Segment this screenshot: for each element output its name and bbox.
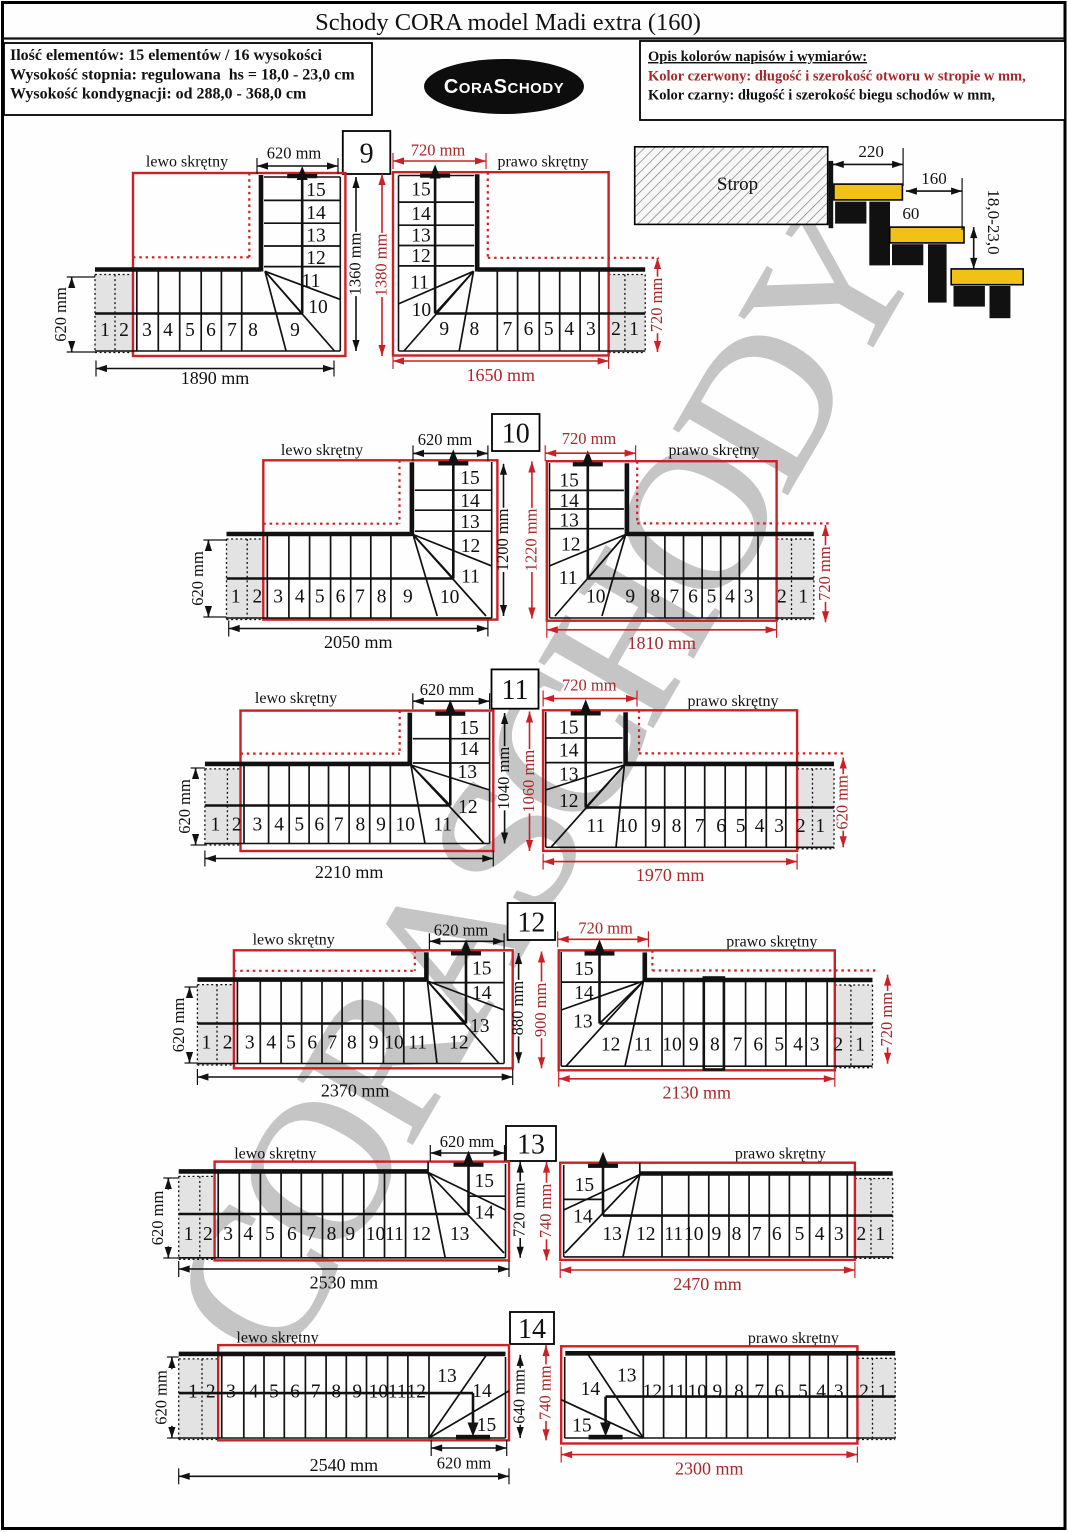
svg-text:220: 220 bbox=[858, 142, 884, 161]
svg-text:9: 9 bbox=[403, 587, 413, 608]
svg-text:15: 15 bbox=[477, 1415, 497, 1436]
svg-text:7: 7 bbox=[695, 816, 705, 837]
svg-text:3: 3 bbox=[253, 815, 263, 836]
svg-text:13: 13 bbox=[450, 1224, 470, 1245]
svg-text:1810 mm: 1810 mm bbox=[627, 633, 696, 653]
svg-text:15: 15 bbox=[575, 1175, 595, 1196]
svg-text:10: 10 bbox=[684, 1224, 704, 1245]
svg-text:6: 6 bbox=[206, 320, 216, 341]
svg-text:12: 12 bbox=[461, 536, 481, 557]
svg-text:4: 4 bbox=[266, 1032, 276, 1053]
svg-text:14: 14 bbox=[306, 203, 326, 224]
svg-text:lewo skrętny: lewo skrętny bbox=[234, 1146, 316, 1163]
svg-text:5: 5 bbox=[315, 587, 325, 608]
svg-text:13: 13 bbox=[470, 1016, 490, 1037]
svg-text:11: 11 bbox=[559, 568, 578, 589]
svg-text:Ilość elementów: 15 elementów: Ilość elementów: 15 elementów / 16 wysok… bbox=[10, 47, 323, 64]
svg-text:1: 1 bbox=[100, 320, 110, 341]
svg-text:1890 mm: 1890 mm bbox=[181, 368, 250, 388]
svg-text:9: 9 bbox=[625, 587, 635, 608]
svg-text:4: 4 bbox=[725, 587, 735, 608]
svg-text:5: 5 bbox=[795, 1224, 805, 1245]
svg-text:4: 4 bbox=[755, 816, 765, 837]
svg-text:13: 13 bbox=[457, 762, 477, 783]
svg-text:11: 11 bbox=[302, 271, 321, 292]
svg-text:11: 11 bbox=[408, 1032, 427, 1053]
svg-text:1: 1 bbox=[231, 587, 241, 608]
svg-text:6: 6 bbox=[290, 1381, 300, 1402]
svg-text:prawo skrętny: prawo skrętny bbox=[497, 154, 588, 171]
svg-text:11: 11 bbox=[667, 1381, 686, 1402]
svg-text:11: 11 bbox=[385, 1224, 404, 1245]
svg-text:1970 mm: 1970 mm bbox=[636, 865, 705, 885]
svg-text:5: 5 bbox=[707, 587, 717, 608]
svg-text:9: 9 bbox=[376, 815, 386, 836]
svg-text:2300 mm: 2300 mm bbox=[675, 1459, 744, 1479]
svg-text:4: 4 bbox=[815, 1224, 825, 1245]
svg-text:10: 10 bbox=[384, 1032, 404, 1053]
svg-text:15: 15 bbox=[411, 179, 431, 200]
svg-text:8: 8 bbox=[377, 587, 387, 608]
svg-text:7: 7 bbox=[227, 320, 237, 341]
svg-text:6: 6 bbox=[772, 1224, 782, 1245]
svg-text:620 mm: 620 mm bbox=[169, 998, 188, 1053]
svg-text:720 mm: 720 mm bbox=[411, 141, 466, 160]
svg-text:14: 14 bbox=[559, 491, 579, 512]
svg-text:9: 9 bbox=[651, 816, 661, 837]
svg-text:14: 14 bbox=[472, 1381, 492, 1402]
svg-text:5: 5 bbox=[286, 1032, 296, 1053]
svg-text:prawo skrętny: prawo skrętny bbox=[735, 1146, 826, 1163]
svg-text:5: 5 bbox=[185, 320, 195, 341]
svg-text:12: 12 bbox=[458, 797, 478, 818]
svg-text:12: 12 bbox=[643, 1381, 663, 1402]
svg-text:1040 mm: 1040 mm bbox=[494, 747, 513, 810]
svg-text:740 mm: 740 mm bbox=[536, 1184, 555, 1239]
svg-text:14: 14 bbox=[460, 491, 480, 512]
svg-text:13: 13 bbox=[306, 225, 326, 246]
svg-text:2: 2 bbox=[119, 320, 129, 341]
svg-text:10: 10 bbox=[366, 1224, 386, 1245]
svg-text:lewo skrętny: lewo skrętny bbox=[146, 154, 228, 171]
svg-text:11: 11 bbox=[388, 1381, 407, 1402]
svg-text:720 mm: 720 mm bbox=[510, 1182, 529, 1237]
svg-text:2: 2 bbox=[833, 1034, 843, 1055]
svg-text:2370 mm: 2370 mm bbox=[321, 1081, 390, 1101]
svg-text:Wysokość stopnia: regulowana: Wysokość stopnia: regulowana hs = 18,0 -… bbox=[10, 67, 355, 84]
svg-text:2: 2 bbox=[206, 1381, 216, 1402]
svg-text:1650 mm: 1650 mm bbox=[467, 365, 536, 385]
svg-text:6: 6 bbox=[753, 1034, 763, 1055]
svg-text:11: 11 bbox=[410, 273, 429, 294]
svg-text:12: 12 bbox=[561, 534, 581, 555]
svg-text:Kolor czerwony: długość i sze: Kolor czerwony: długość i szerokość otwo… bbox=[648, 69, 1026, 85]
svg-text:13: 13 bbox=[559, 511, 579, 532]
svg-text:720 mm: 720 mm bbox=[647, 278, 666, 333]
svg-text:2: 2 bbox=[203, 1224, 213, 1245]
svg-text:4: 4 bbox=[243, 1224, 253, 1245]
svg-text:8: 8 bbox=[672, 816, 682, 837]
svg-text:10: 10 bbox=[440, 587, 460, 608]
svg-text:1: 1 bbox=[184, 1224, 194, 1245]
svg-text:11: 11 bbox=[502, 675, 529, 706]
svg-text:12: 12 bbox=[449, 1032, 469, 1053]
svg-text:720 mm: 720 mm bbox=[815, 546, 834, 601]
svg-text:prawo skrętny: prawo skrętny bbox=[726, 933, 817, 950]
svg-text:11: 11 bbox=[664, 1224, 683, 1245]
svg-text:12: 12 bbox=[306, 248, 326, 269]
svg-text:620 mm: 620 mm bbox=[51, 287, 70, 342]
svg-text:1: 1 bbox=[878, 1381, 888, 1402]
svg-text:12: 12 bbox=[411, 246, 431, 267]
svg-text:15: 15 bbox=[475, 1171, 495, 1192]
svg-text:6: 6 bbox=[287, 1224, 297, 1245]
svg-text:8: 8 bbox=[248, 320, 258, 341]
svg-text:1360 mm: 1360 mm bbox=[346, 232, 365, 295]
svg-text:4: 4 bbox=[793, 1034, 803, 1055]
svg-text:18,0-23,0: 18,0-23,0 bbox=[984, 189, 1003, 254]
svg-text:3: 3 bbox=[142, 320, 152, 341]
svg-text:7: 7 bbox=[306, 1224, 316, 1245]
svg-text:880 mm: 880 mm bbox=[508, 981, 527, 1036]
svg-text:7: 7 bbox=[355, 587, 365, 608]
svg-text:620 mm: 620 mm bbox=[434, 921, 489, 940]
svg-text:15: 15 bbox=[559, 471, 579, 492]
svg-text:3: 3 bbox=[245, 1032, 255, 1053]
svg-text:15: 15 bbox=[460, 468, 480, 489]
svg-text:CORASCHODY: CORASCHODY bbox=[444, 76, 564, 98]
svg-text:8: 8 bbox=[347, 1032, 357, 1053]
svg-text:2: 2 bbox=[611, 319, 621, 340]
svg-text:prawo skrętny: prawo skrętny bbox=[687, 693, 778, 710]
svg-text:720 mm: 720 mm bbox=[562, 429, 617, 448]
svg-text:1220 mm: 1220 mm bbox=[521, 508, 540, 571]
svg-text:9: 9 bbox=[712, 1224, 722, 1245]
svg-text:14: 14 bbox=[559, 741, 579, 762]
svg-text:720 mm: 720 mm bbox=[578, 919, 633, 938]
svg-text:5: 5 bbox=[269, 1381, 279, 1402]
svg-text:8: 8 bbox=[710, 1034, 720, 1055]
svg-text:2050 mm: 2050 mm bbox=[324, 632, 393, 652]
svg-text:15: 15 bbox=[574, 959, 594, 980]
svg-text:9: 9 bbox=[369, 1032, 379, 1053]
svg-text:lewo skrętny: lewo skrętny bbox=[253, 931, 335, 948]
svg-text:15: 15 bbox=[572, 1416, 592, 1437]
svg-text:2: 2 bbox=[796, 816, 806, 837]
svg-text:2: 2 bbox=[777, 587, 787, 608]
svg-text:15: 15 bbox=[306, 180, 326, 201]
svg-text:9: 9 bbox=[713, 1381, 723, 1402]
svg-text:3: 3 bbox=[834, 1224, 844, 1245]
svg-text:7: 7 bbox=[733, 1034, 743, 1055]
svg-text:15: 15 bbox=[459, 718, 479, 739]
svg-text:4: 4 bbox=[163, 320, 173, 341]
svg-text:5: 5 bbox=[265, 1224, 275, 1245]
svg-text:13: 13 bbox=[602, 1224, 622, 1245]
svg-text:15: 15 bbox=[472, 958, 492, 979]
svg-text:6: 6 bbox=[524, 319, 534, 340]
svg-text:3: 3 bbox=[810, 1034, 820, 1055]
svg-text:11: 11 bbox=[634, 1034, 653, 1055]
svg-text:10: 10 bbox=[618, 816, 638, 837]
svg-text:10: 10 bbox=[369, 1381, 389, 1402]
svg-text:14: 14 bbox=[472, 983, 492, 1004]
svg-text:740 mm: 740 mm bbox=[536, 1365, 555, 1420]
svg-text:2210 mm: 2210 mm bbox=[315, 862, 384, 882]
svg-text:1: 1 bbox=[798, 587, 808, 608]
svg-text:2540 mm: 2540 mm bbox=[310, 1455, 379, 1475]
svg-text:620 mm: 620 mm bbox=[175, 779, 194, 834]
svg-text:14: 14 bbox=[475, 1203, 495, 1224]
svg-text:4: 4 bbox=[295, 587, 305, 608]
svg-text:Kolor czarny: długość i szero: Kolor czarny: długość i szerokość biegu … bbox=[648, 88, 995, 104]
svg-text:12: 12 bbox=[559, 791, 579, 812]
svg-text:14: 14 bbox=[518, 1314, 546, 1345]
svg-text:8: 8 bbox=[331, 1381, 341, 1402]
svg-text:Schody CORA model Madi extra (: Schody CORA model Madi extra (160) bbox=[315, 9, 701, 36]
svg-text:6: 6 bbox=[688, 587, 698, 608]
svg-text:5: 5 bbox=[294, 815, 304, 836]
svg-text:7: 7 bbox=[752, 1224, 762, 1245]
svg-text:7: 7 bbox=[503, 319, 513, 340]
svg-text:1380 mm: 1380 mm bbox=[372, 233, 391, 296]
svg-text:8: 8 bbox=[732, 1224, 742, 1245]
svg-text:13: 13 bbox=[411, 225, 431, 246]
svg-text:Strop: Strop bbox=[717, 174, 758, 195]
svg-text:13: 13 bbox=[460, 512, 480, 533]
svg-text:9: 9 bbox=[689, 1034, 699, 1055]
svg-text:10: 10 bbox=[662, 1034, 682, 1055]
svg-text:Wysokość kondygnacji: od 288,0: Wysokość kondygnacji: od 288,0 - 368,0 c… bbox=[10, 86, 307, 103]
svg-text:2: 2 bbox=[223, 1032, 233, 1053]
svg-text:6: 6 bbox=[336, 587, 346, 608]
svg-text:1: 1 bbox=[875, 1224, 885, 1245]
svg-text:11: 11 bbox=[461, 566, 480, 587]
svg-text:3: 3 bbox=[273, 587, 283, 608]
svg-text:10: 10 bbox=[412, 300, 432, 321]
svg-text:10: 10 bbox=[502, 419, 530, 450]
svg-text:2: 2 bbox=[857, 1224, 867, 1245]
svg-text:4: 4 bbox=[249, 1381, 259, 1402]
svg-text:lewo skrętny: lewo skrętny bbox=[281, 442, 363, 459]
svg-text:1060 mm: 1060 mm bbox=[519, 750, 538, 813]
svg-text:8: 8 bbox=[734, 1381, 744, 1402]
svg-text:14: 14 bbox=[459, 739, 479, 760]
svg-text:9: 9 bbox=[360, 139, 374, 170]
svg-text:14: 14 bbox=[574, 983, 594, 1004]
svg-text:2: 2 bbox=[859, 1381, 869, 1402]
svg-text:prawo skrętny: prawo skrętny bbox=[668, 442, 759, 459]
svg-text:7: 7 bbox=[334, 815, 344, 836]
svg-text:9: 9 bbox=[352, 1381, 362, 1402]
svg-text:prawo skrętny: prawo skrętny bbox=[748, 1330, 839, 1347]
svg-text:10: 10 bbox=[586, 587, 606, 608]
svg-text:13: 13 bbox=[559, 765, 579, 786]
svg-text:8: 8 bbox=[470, 319, 480, 340]
svg-text:6: 6 bbox=[774, 1381, 784, 1402]
svg-text:6: 6 bbox=[314, 815, 324, 836]
svg-text:1: 1 bbox=[211, 815, 221, 836]
svg-text:2: 2 bbox=[253, 587, 263, 608]
svg-text:13: 13 bbox=[617, 1365, 637, 1386]
svg-text:12: 12 bbox=[412, 1224, 432, 1245]
svg-text:4: 4 bbox=[816, 1381, 826, 1402]
svg-text:11: 11 bbox=[587, 816, 606, 837]
svg-text:lewo skrętny: lewo skrętny bbox=[255, 690, 337, 707]
svg-text:3: 3 bbox=[226, 1381, 236, 1402]
svg-text:15: 15 bbox=[559, 718, 579, 739]
svg-text:5: 5 bbox=[544, 319, 554, 340]
svg-text:8: 8 bbox=[327, 1224, 337, 1245]
svg-text:14: 14 bbox=[411, 204, 431, 225]
svg-text:2530 mm: 2530 mm bbox=[310, 1273, 379, 1293]
svg-text:620 mm: 620 mm bbox=[267, 144, 322, 163]
svg-text:620 mm: 620 mm bbox=[833, 775, 852, 830]
svg-text:900 mm: 900 mm bbox=[531, 982, 550, 1037]
svg-text:720 mm: 720 mm bbox=[562, 676, 617, 695]
svg-text:720 mm: 720 mm bbox=[877, 992, 896, 1047]
svg-text:9: 9 bbox=[439, 319, 449, 340]
svg-text:3: 3 bbox=[223, 1224, 233, 1245]
svg-text:8: 8 bbox=[356, 815, 366, 836]
svg-text:2470 mm: 2470 mm bbox=[673, 1274, 742, 1294]
svg-text:6: 6 bbox=[716, 816, 726, 837]
svg-text:10: 10 bbox=[687, 1381, 707, 1402]
svg-text:7: 7 bbox=[311, 1381, 321, 1402]
svg-text:9: 9 bbox=[290, 320, 300, 341]
svg-text:640 mm: 640 mm bbox=[510, 1369, 529, 1424]
svg-text:620 mm: 620 mm bbox=[188, 551, 207, 606]
svg-text:2130 mm: 2130 mm bbox=[663, 1083, 732, 1103]
svg-text:3: 3 bbox=[834, 1381, 844, 1402]
svg-text:14: 14 bbox=[581, 1379, 601, 1400]
svg-text:8: 8 bbox=[650, 587, 660, 608]
svg-text:11: 11 bbox=[433, 815, 452, 836]
svg-text:5: 5 bbox=[736, 816, 746, 837]
svg-text:7: 7 bbox=[327, 1032, 337, 1053]
svg-text:14: 14 bbox=[573, 1206, 593, 1227]
svg-text:4: 4 bbox=[564, 319, 574, 340]
svg-text:160: 160 bbox=[921, 169, 947, 188]
svg-text:3: 3 bbox=[586, 319, 596, 340]
svg-text:1: 1 bbox=[855, 1034, 865, 1055]
svg-text:Opis kolorów napisów i wymiaró: Opis kolorów napisów i wymiarów: bbox=[648, 49, 867, 65]
svg-text:3: 3 bbox=[774, 816, 784, 837]
svg-text:1200 mm: 1200 mm bbox=[493, 508, 512, 571]
svg-text:12: 12 bbox=[517, 908, 545, 939]
svg-text:13: 13 bbox=[517, 1130, 545, 1161]
svg-text:4: 4 bbox=[274, 815, 284, 836]
svg-text:620 mm: 620 mm bbox=[440, 1132, 495, 1151]
svg-text:12: 12 bbox=[636, 1224, 656, 1245]
svg-text:5: 5 bbox=[774, 1034, 784, 1055]
svg-text:1: 1 bbox=[202, 1032, 212, 1053]
svg-text:12: 12 bbox=[406, 1381, 426, 1402]
svg-text:10: 10 bbox=[396, 815, 416, 836]
svg-text:7: 7 bbox=[754, 1381, 764, 1402]
svg-text:1: 1 bbox=[815, 816, 825, 837]
svg-text:1: 1 bbox=[629, 319, 639, 340]
svg-text:620 mm: 620 mm bbox=[151, 1370, 170, 1425]
svg-text:1: 1 bbox=[188, 1381, 198, 1402]
svg-text:9: 9 bbox=[345, 1224, 355, 1245]
svg-text:620 mm: 620 mm bbox=[437, 1454, 492, 1473]
svg-text:7: 7 bbox=[669, 587, 679, 608]
svg-text:620 mm: 620 mm bbox=[148, 1191, 167, 1246]
svg-text:10: 10 bbox=[308, 297, 328, 318]
svg-text:13: 13 bbox=[573, 1012, 593, 1033]
svg-text:3: 3 bbox=[744, 587, 754, 608]
svg-text:6: 6 bbox=[307, 1032, 317, 1053]
svg-text:5: 5 bbox=[798, 1381, 808, 1402]
svg-text:620 mm: 620 mm bbox=[418, 430, 473, 449]
svg-text:60: 60 bbox=[902, 204, 919, 223]
svg-text:2: 2 bbox=[232, 815, 242, 836]
svg-text:13: 13 bbox=[437, 1366, 457, 1387]
svg-text:620 mm: 620 mm bbox=[420, 680, 475, 699]
svg-text:12: 12 bbox=[601, 1034, 621, 1055]
